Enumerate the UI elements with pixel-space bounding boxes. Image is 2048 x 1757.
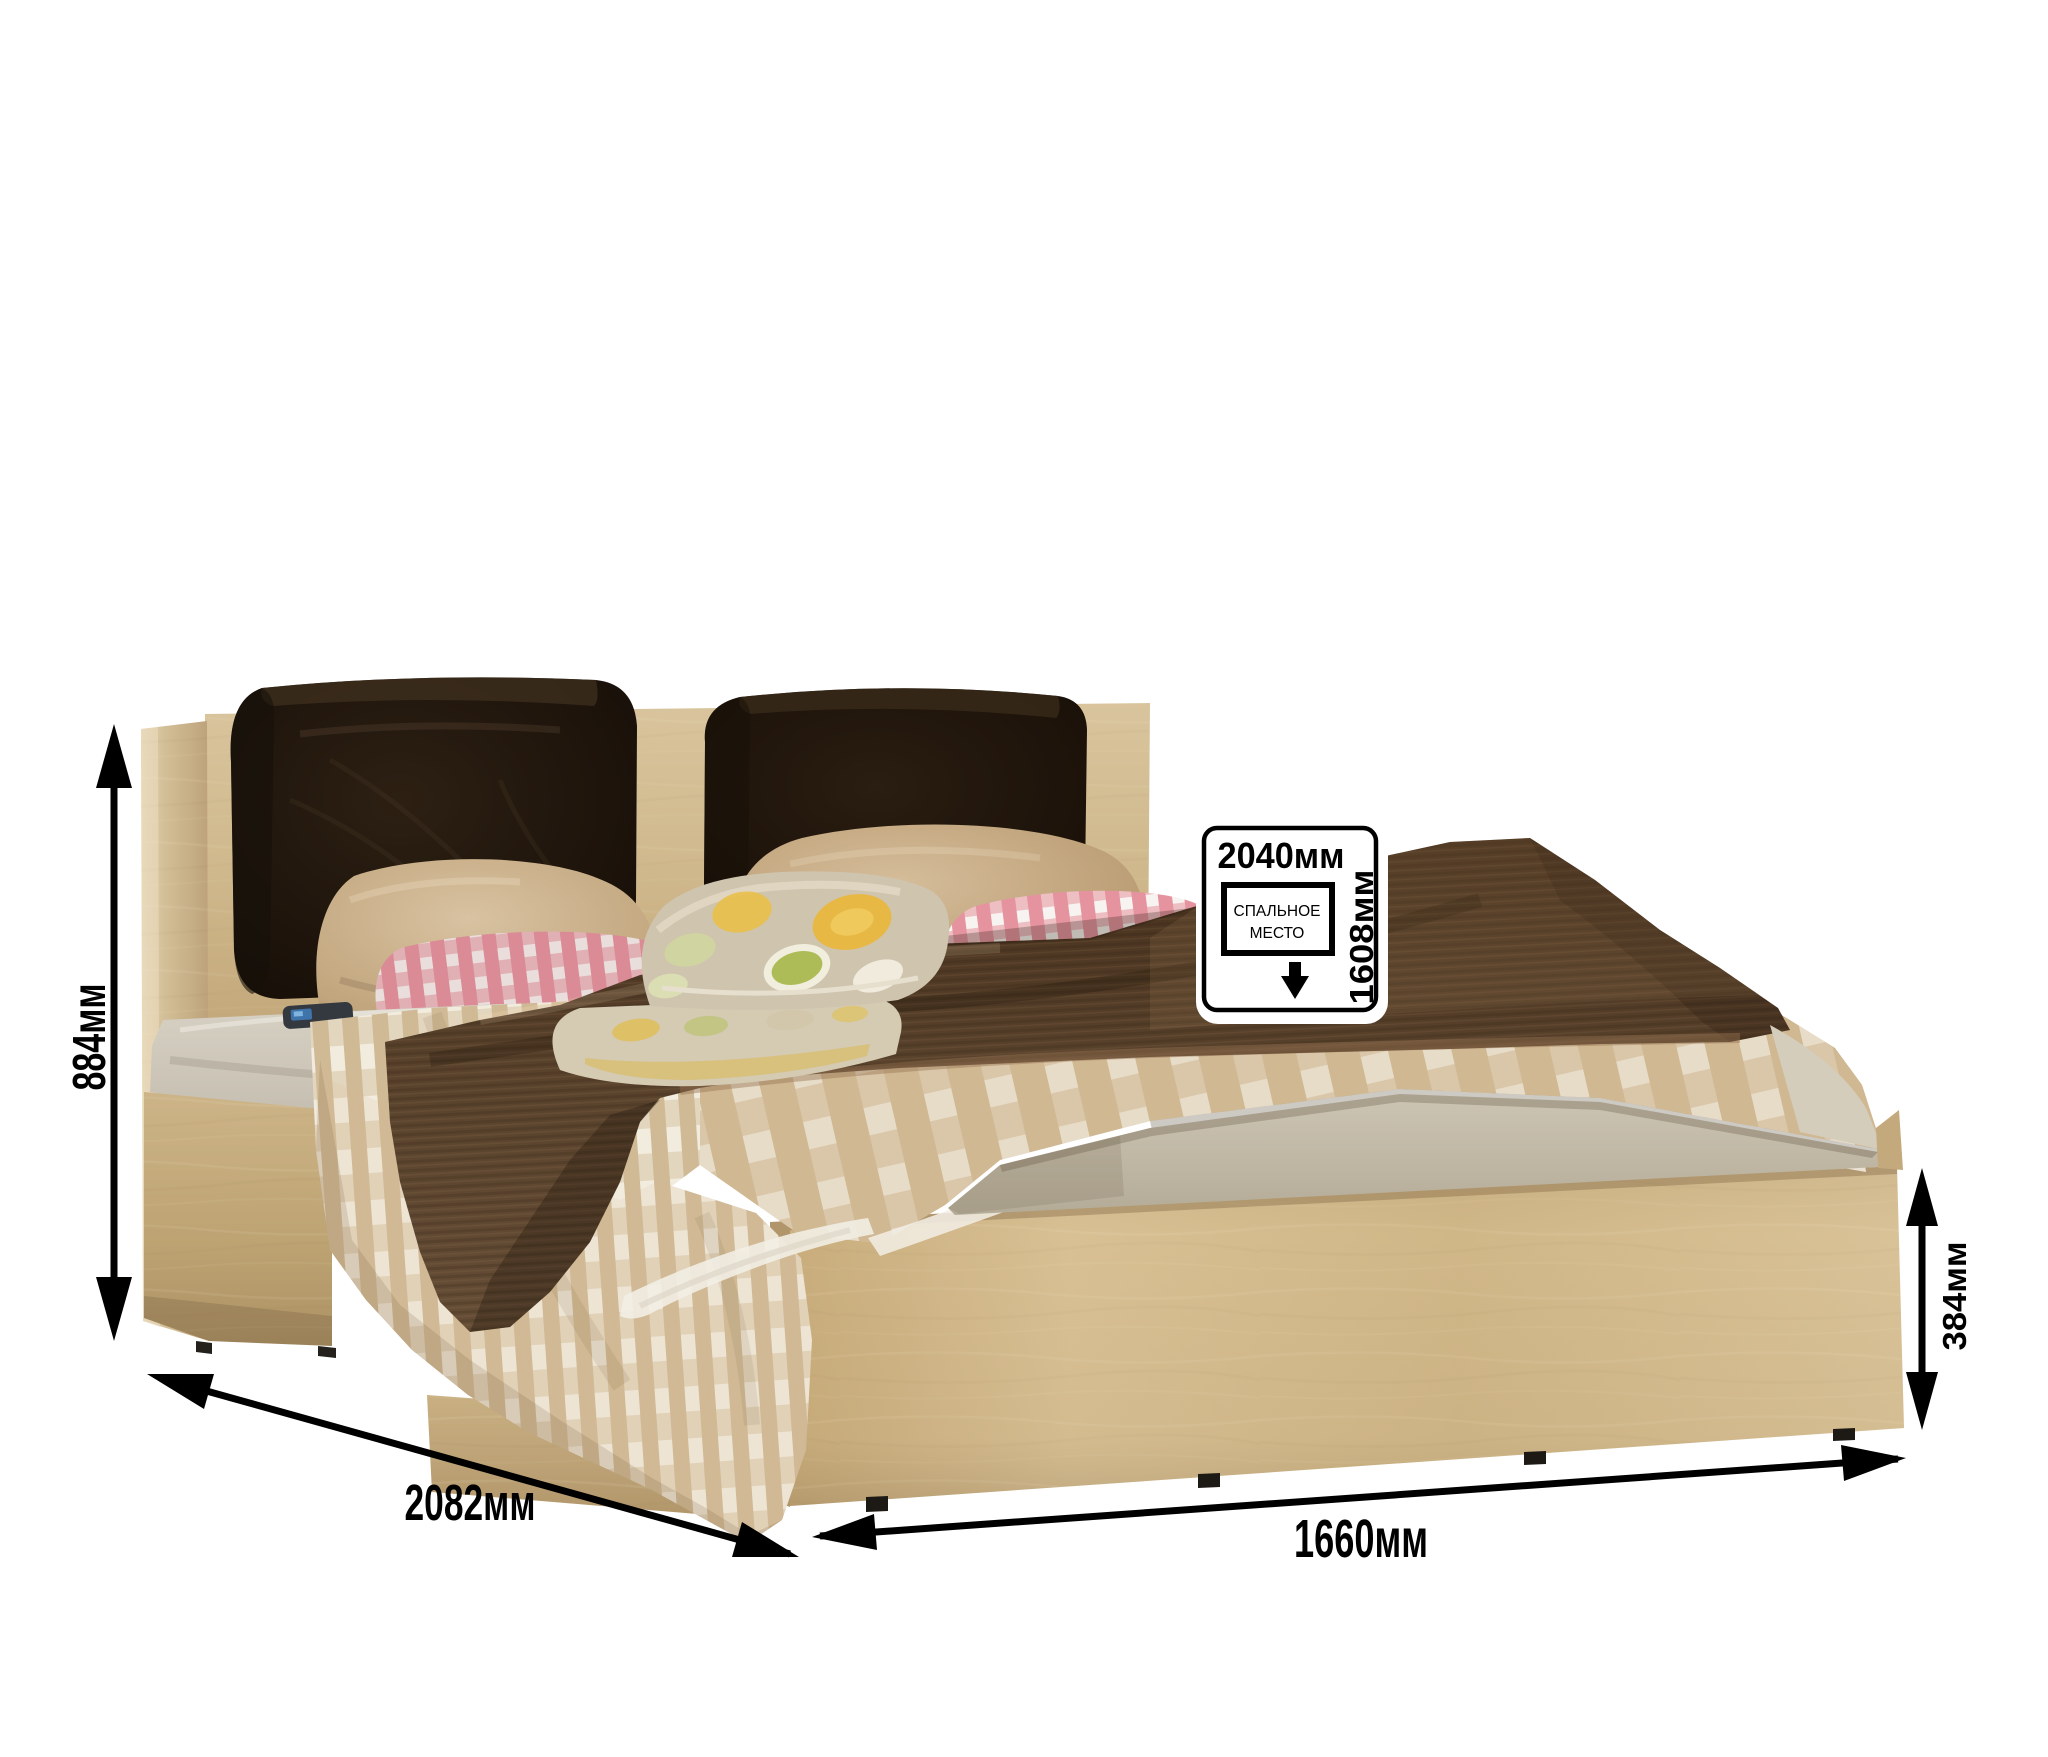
svg-text:1660мм: 1660мм xyxy=(1294,1509,1428,1569)
svg-text:МЕСТО: МЕСТО xyxy=(1250,925,1305,942)
svg-text:СПАЛЬНОЕ: СПАЛЬНОЕ xyxy=(1234,903,1321,920)
svg-text:2040мм: 2040мм xyxy=(1218,835,1345,876)
svg-text:884мм: 884мм xyxy=(63,984,115,1091)
svg-text:2082мм: 2082мм xyxy=(405,1474,536,1531)
svg-text:1608мм: 1608мм xyxy=(1343,870,1380,1005)
svg-text:384мм: 384мм xyxy=(1936,1242,1973,1351)
